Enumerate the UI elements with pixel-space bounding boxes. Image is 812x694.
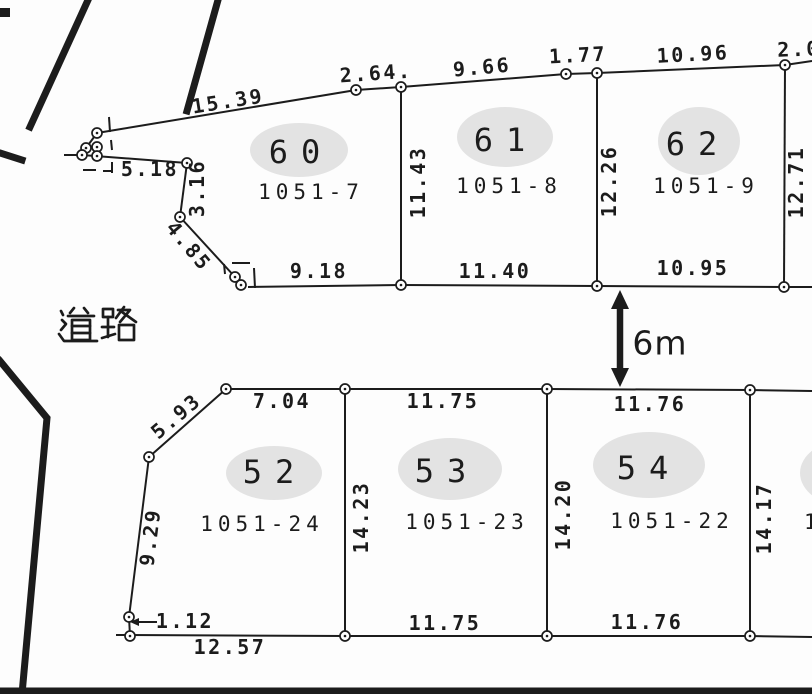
survey-marker-dot	[749, 389, 752, 392]
dimension-label: 11.75	[409, 611, 482, 635]
plot-number: 53	[415, 452, 480, 490]
dimension-label: 2.64.	[339, 58, 413, 87]
paper-background	[0, 0, 812, 694]
parcel-boundary-line	[401, 285, 597, 286]
survey-map-canvas: 15.392.64.9.661.7710.962.05.183.164.859.…	[0, 0, 812, 694]
survey-marker-dot	[400, 86, 403, 89]
survey-marker-dot	[344, 635, 347, 638]
survey-marker-dot	[784, 64, 787, 67]
survey-marker-dot	[596, 72, 599, 75]
survey-marker-dot	[344, 388, 347, 391]
survey-marker-dot	[96, 132, 99, 135]
dimension-label: 2.0	[777, 36, 812, 62]
survey-marker-dot	[81, 154, 84, 157]
plot-lot-number: 1051-9	[653, 174, 759, 198]
bracket-dash	[109, 117, 110, 132]
survey-marker-dot	[546, 635, 549, 638]
plot-lot-number: 1051-7	[258, 180, 364, 204]
bracket-dash	[111, 140, 112, 150]
dimension-label: 14.20	[551, 478, 575, 551]
dimension-label: 3.16	[185, 159, 209, 217]
bracket-dash	[224, 264, 225, 274]
survey-marker-dot	[96, 146, 99, 149]
dimension-label: 14.23	[349, 481, 373, 554]
parcel-boundary-line	[597, 286, 784, 287]
plot-number: 54	[617, 449, 682, 487]
plot-lot-number: 1051-8	[456, 174, 562, 198]
survey-marker-dot	[129, 635, 132, 638]
cadastral-survey-map-scan: 15.392.64.9.661.7710.962.05.183.164.859.…	[0, 0, 812, 694]
corner-block	[0, 8, 10, 17]
survey-marker-dot	[85, 147, 88, 150]
dimension-label: 11.75	[407, 389, 480, 413]
dimension-label: 12.57	[194, 635, 267, 659]
plot-lot-number: 1051-24	[200, 512, 324, 536]
survey-marker-dot	[234, 276, 237, 279]
dimension-label: 7.04	[253, 389, 311, 413]
survey-marker-dot	[546, 388, 549, 391]
parcel-boundary-line	[750, 390, 812, 391]
parcel-boundary-line	[750, 636, 812, 637]
dimension-label: 11.76	[611, 610, 684, 634]
plot-number: 62	[666, 125, 731, 163]
survey-marker-dot	[783, 286, 786, 289]
dimension-label: 10.95	[657, 256, 730, 280]
plot-lot-number: 1051-23	[405, 510, 529, 534]
dimension-label: 9.66	[452, 53, 512, 82]
dimension-label: 5.18	[121, 157, 179, 181]
dimension-label: 1.77	[548, 41, 607, 68]
survey-marker-dot	[749, 635, 752, 638]
survey-marker-dot	[240, 284, 243, 287]
plot-lot-number: 1051-22	[610, 509, 734, 533]
survey-marker-dot	[225, 388, 228, 391]
plot-number: 52	[243, 453, 308, 491]
survey-marker-dot	[148, 456, 151, 459]
dimension-label: 12.71	[784, 146, 808, 219]
dimension-label: 1.12	[156, 609, 214, 633]
dimension-label: 11.40	[459, 259, 532, 283]
gap-size-label: 6m	[632, 324, 687, 363]
dimension-label: 14.17	[752, 482, 776, 555]
survey-marker-dot	[565, 73, 568, 76]
dimension-label: 12.26	[597, 145, 621, 218]
bracket-dash	[254, 268, 255, 288]
dimension-label: 10.96	[656, 40, 730, 68]
survey-marker-dot	[128, 616, 131, 619]
dimension-label: 11.76	[614, 392, 687, 416]
survey-marker-dot	[400, 284, 403, 287]
plot-number: 61	[474, 121, 539, 159]
plot-number: 60	[269, 133, 334, 171]
road-label-text: 道路	[61, 305, 133, 346]
survey-marker-dot	[596, 285, 599, 288]
survey-marker-dot	[96, 155, 99, 158]
dimension-label: 11.43	[406, 146, 430, 219]
survey-marker-dot	[355, 89, 358, 92]
partial-lot-fragment: 1	[804, 510, 812, 534]
parcel-boundary-line	[547, 389, 750, 390]
dimension-label: 9.18	[290, 259, 348, 283]
